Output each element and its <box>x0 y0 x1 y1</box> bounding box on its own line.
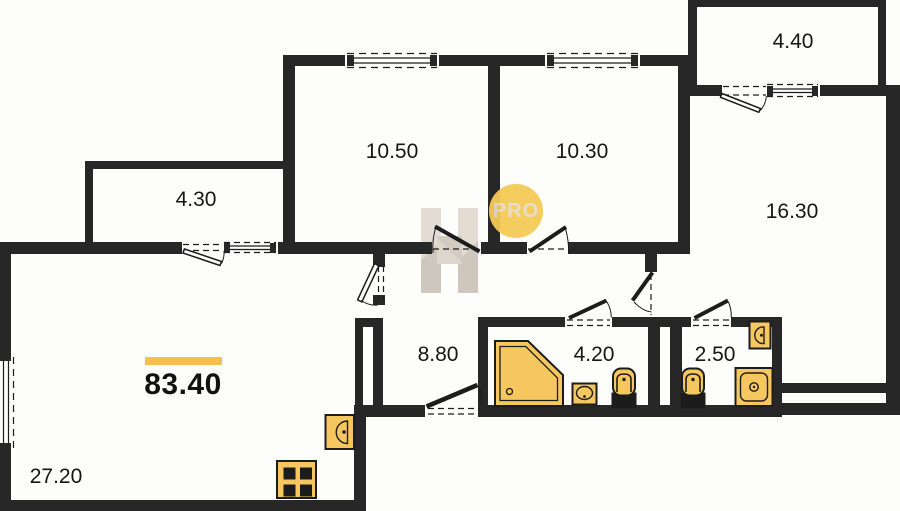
window-living-left <box>0 354 14 450</box>
wall-segment <box>688 85 722 96</box>
pro-watermark-label: PRO <box>493 200 539 223</box>
wall-segment <box>354 405 366 511</box>
room-label-bedroom-left: 10.50 <box>366 140 419 164</box>
corner-shower <box>495 341 563 406</box>
wall-segment <box>0 242 182 254</box>
wall-segment <box>886 85 900 415</box>
wall-segment <box>782 383 892 393</box>
pro-watermark-badge: PRO <box>489 184 543 238</box>
wall-segment <box>276 242 432 254</box>
wall-segment <box>878 0 886 92</box>
door-balcony-left <box>183 245 224 266</box>
wall-segment <box>0 500 366 511</box>
wall-segment <box>478 405 782 417</box>
wall-segment <box>688 0 886 7</box>
wall-segment <box>373 295 385 305</box>
washing-machine <box>736 368 773 406</box>
total-area-accent-bar <box>145 357 222 365</box>
window-balcony-left <box>222 241 278 255</box>
room-label-bedroom-mid: 10.30 <box>556 140 609 164</box>
wall-segment <box>366 405 425 417</box>
wall-segment <box>283 55 295 242</box>
wall-segment <box>645 254 657 272</box>
duct-shaft-inner <box>363 327 373 405</box>
room-label-bathroom: 4.20 <box>574 343 615 367</box>
room-label-living: 27.20 <box>30 465 83 489</box>
wc-toilet <box>681 369 706 409</box>
wall-segment <box>481 242 527 254</box>
kitchen-sink <box>326 415 355 449</box>
stove <box>277 461 316 498</box>
wall-segment <box>85 161 93 242</box>
door-bathroom <box>567 301 611 326</box>
wall-segment <box>772 403 900 415</box>
wall-segment <box>478 317 565 327</box>
wall-segment <box>0 242 11 354</box>
wall-segment <box>478 317 488 417</box>
room-label-wc: 2.50 <box>695 343 736 367</box>
room-label-bedroom-right: 16.30 <box>766 200 819 224</box>
wall-segment <box>283 55 347 66</box>
wall-segment <box>648 317 660 405</box>
floor-plan: PRO 27.20 4.30 10.50 10.30 4.40 16.30 8.… <box>0 0 900 511</box>
h-logo-crossbar <box>437 236 462 264</box>
wall-segment <box>670 317 682 405</box>
window-bedroom-left <box>345 52 439 69</box>
window-balcony-top <box>765 83 820 98</box>
total-area-label: 83.40 <box>144 368 222 402</box>
bathroom-sink <box>573 384 597 405</box>
room-label-balcony-top: 4.40 <box>773 30 814 54</box>
door-wc <box>693 301 731 326</box>
bathroom-toilet <box>612 369 637 409</box>
wall-segment <box>85 161 293 169</box>
door-bedroom-right <box>633 273 653 316</box>
wall-segment <box>772 317 782 417</box>
entrance-door <box>427 385 483 414</box>
wall-segment <box>818 85 886 96</box>
room-label-hallway: 8.80 <box>418 343 459 367</box>
wall-segment <box>568 242 690 254</box>
door-balcony-top <box>721 87 767 113</box>
window-bedroom-mid <box>545 52 640 69</box>
wall-segment <box>373 254 385 267</box>
wall-segment <box>688 0 697 92</box>
room-label-balcony-left: 4.30 <box>176 188 217 212</box>
